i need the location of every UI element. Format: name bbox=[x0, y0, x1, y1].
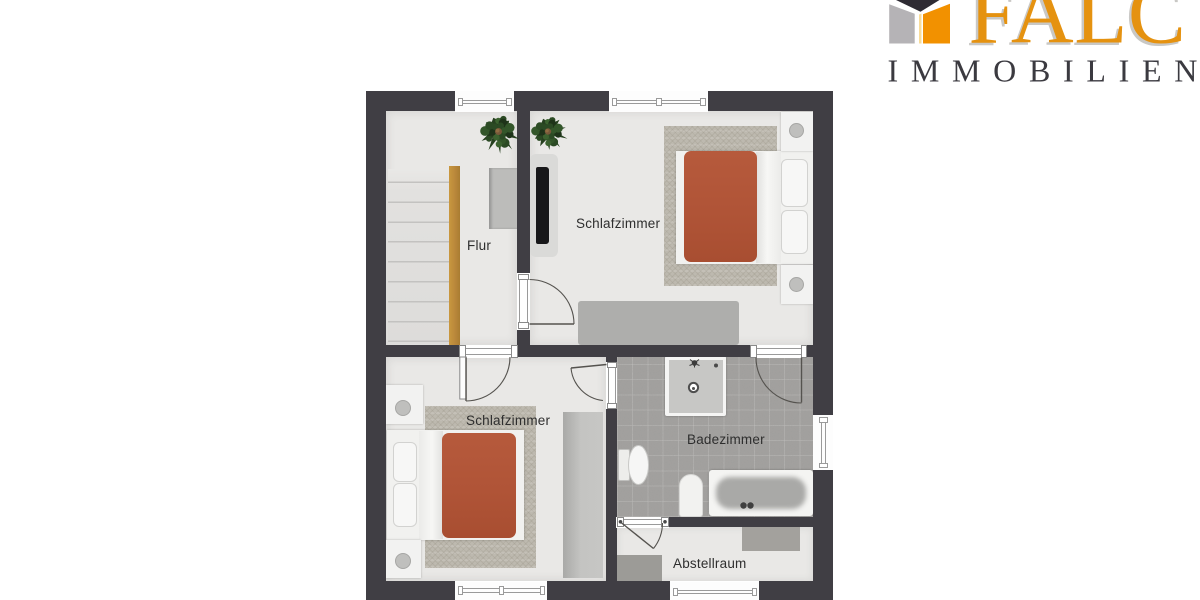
svg-text:IMMOBILIEN: IMMOBILIEN bbox=[888, 52, 1200, 88]
